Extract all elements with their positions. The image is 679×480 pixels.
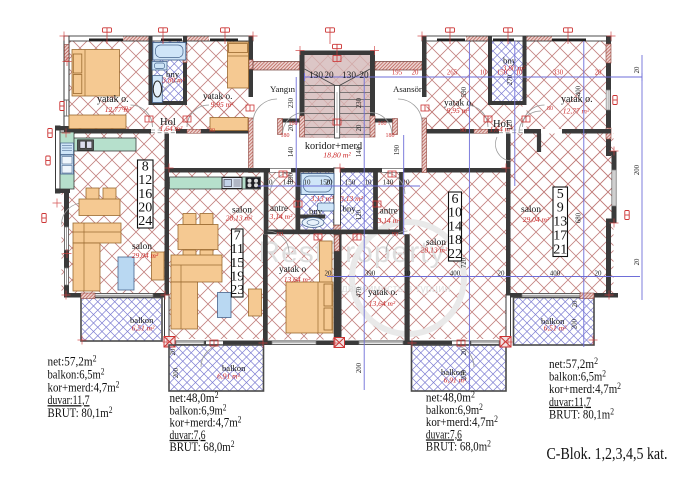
svg-text:3,14 m²: 3,14 m²: [377, 216, 401, 225]
svg-text:12,77 m²: 12,77 m²: [563, 107, 590, 116]
svg-text:90: 90: [392, 232, 398, 238]
svg-text:400: 400: [450, 270, 461, 278]
svg-text:bny: bny: [343, 204, 357, 214]
svg-text:200: 200: [572, 318, 579, 329]
svg-text:6,51 m²: 6,51 m²: [544, 324, 567, 333]
svg-text:330: 330: [553, 70, 564, 77]
svg-text:C-Blok. 1,2,3,4,5 kat.: C-Blok. 1,2,3,4,5 kat.: [547, 444, 668, 463]
svg-text:10: 10: [404, 270, 412, 278]
svg-text:6,51 m²: 6,51 m²: [132, 324, 155, 333]
svg-text:20: 20: [595, 70, 602, 77]
svg-text:balkon:6,5m2: balkon:6,5m2: [48, 366, 105, 381]
svg-text:400: 400: [576, 85, 583, 96]
svg-text:150: 150: [345, 179, 356, 187]
svg-text:1,64 m²: 1,64 m²: [160, 124, 183, 133]
svg-text:80: 80: [547, 106, 553, 112]
svg-text:13,64 m²: 13,64 m²: [369, 299, 396, 308]
svg-text:10: 10: [448, 206, 462, 221]
svg-text:390: 390: [365, 270, 376, 278]
svg-text:yatak o.: yatak o.: [97, 94, 129, 105]
svg-text:28,13 m²: 28,13 m²: [421, 246, 448, 255]
svg-text:28,13 m²: 28,13 m²: [226, 214, 253, 223]
svg-text:200: 200: [461, 369, 468, 380]
svg-text:130: 130: [342, 71, 356, 81]
svg-text:120: 120: [356, 209, 363, 220]
svg-text:14: 14: [448, 219, 462, 234]
svg-text:21: 21: [553, 242, 567, 257]
svg-text:265: 265: [447, 70, 458, 77]
svg-text:yatak o: yatak o: [279, 265, 306, 275]
svg-text:bny: bny: [309, 206, 323, 216]
svg-text:BRUT: 80,1m2: BRUT: 80,1m2: [48, 405, 113, 420]
svg-text:3,13 m²: 3,13 m²: [339, 194, 363, 203]
svg-text:20: 20: [634, 258, 641, 265]
svg-text:17: 17: [553, 229, 567, 244]
svg-text:200: 200: [356, 362, 363, 373]
svg-text:80: 80: [122, 106, 128, 112]
svg-text:9: 9: [557, 201, 564, 216]
svg-text:10: 10: [516, 70, 523, 77]
svg-text:3,80 m²: 3,80 m²: [161, 76, 185, 85]
svg-text:90: 90: [209, 128, 215, 134]
svg-text:190: 190: [394, 144, 401, 155]
svg-text:140: 140: [356, 146, 363, 157]
svg-text:180: 180: [281, 133, 290, 139]
svg-text:3,14 m²: 3,14 m²: [269, 212, 293, 221]
svg-text:BRUT: 68,0m2: BRUT: 68,0m2: [426, 439, 491, 454]
svg-text:10: 10: [304, 179, 312, 187]
svg-text:duvar:11,7: duvar:11,7: [48, 393, 90, 407]
svg-text:10: 10: [365, 179, 373, 187]
svg-text:20: 20: [356, 124, 363, 131]
svg-text:10: 10: [480, 70, 487, 77]
svg-text:18,80 m²: 18,80 m²: [323, 151, 351, 160]
svg-text:6: 6: [452, 192, 459, 207]
svg-text:yatak o.: yatak o.: [368, 288, 397, 298]
svg-text:net:57,2m2: net:57,2m2: [48, 354, 97, 369]
svg-text:230: 230: [356, 97, 363, 108]
svg-text:20: 20: [325, 270, 333, 278]
svg-text:680: 680: [576, 212, 583, 223]
svg-text:13,64 m²: 13,64 m²: [284, 275, 311, 284]
svg-text:90: 90: [277, 232, 283, 238]
svg-text:200: 200: [634, 164, 641, 175]
svg-text:140: 140: [288, 146, 295, 157]
svg-text:20: 20: [498, 270, 506, 278]
svg-text:antre: antre: [380, 206, 398, 216]
svg-text:BRUT: 68,0m2: BRUT: 68,0m2: [170, 439, 235, 454]
svg-text:24: 24: [138, 214, 152, 229]
svg-text:BRUT: 80,1m2: BRUT: 80,1m2: [549, 406, 614, 421]
svg-text:180: 180: [386, 133, 395, 139]
svg-text:Yangın: Yangın: [270, 84, 296, 94]
svg-text:400: 400: [550, 270, 561, 278]
svg-text:20: 20: [412, 70, 419, 77]
svg-text:18: 18: [448, 233, 462, 248]
svg-text:20: 20: [170, 348, 177, 355]
svg-text:22: 22: [448, 247, 462, 262]
svg-text:20: 20: [461, 348, 468, 355]
svg-text:200: 200: [173, 367, 180, 378]
svg-text:6,91 m²: 6,91 m²: [217, 372, 240, 381]
svg-text:23: 23: [230, 283, 244, 298]
svg-text:230: 230: [288, 97, 295, 108]
svg-text:270: 270: [507, 74, 514, 85]
svg-text:130: 130: [309, 71, 323, 81]
svg-text:salon: salon: [521, 205, 541, 215]
svg-text:10: 10: [266, 179, 274, 187]
svg-text:9,95 m²: 9,95 m²: [211, 100, 234, 109]
svg-text:190: 190: [288, 172, 295, 183]
svg-text:29,04 m²: 29,04 m²: [523, 215, 550, 224]
svg-text:160: 160: [289, 121, 298, 127]
svg-text:20: 20: [572, 300, 579, 307]
svg-text:29,04 m²: 29,04 m²: [132, 251, 159, 260]
svg-text:kor+merd:4,7m2: kor+merd:4,7m2: [48, 379, 120, 394]
svg-text:9,95 m²: 9,95 m²: [447, 106, 470, 115]
svg-text:20: 20: [324, 71, 334, 81]
svg-text:720: 720: [461, 257, 468, 268]
svg-text:195: 195: [392, 70, 403, 77]
svg-text:140: 140: [383, 179, 394, 187]
svg-text:470: 470: [356, 286, 363, 297]
svg-text:3,13 m²: 3,13 m²: [310, 194, 334, 203]
svg-text:Asansör: Asansör: [393, 84, 422, 94]
svg-text:160: 160: [378, 121, 387, 127]
svg-text:90: 90: [460, 128, 466, 134]
svg-text:150: 150: [320, 179, 331, 187]
svg-text:20: 20: [595, 270, 603, 278]
svg-text:20: 20: [634, 66, 641, 73]
svg-text:5: 5: [557, 187, 564, 202]
svg-text:13: 13: [553, 215, 567, 230]
svg-text:120: 120: [507, 119, 514, 130]
svg-text:590: 590: [461, 86, 468, 97]
